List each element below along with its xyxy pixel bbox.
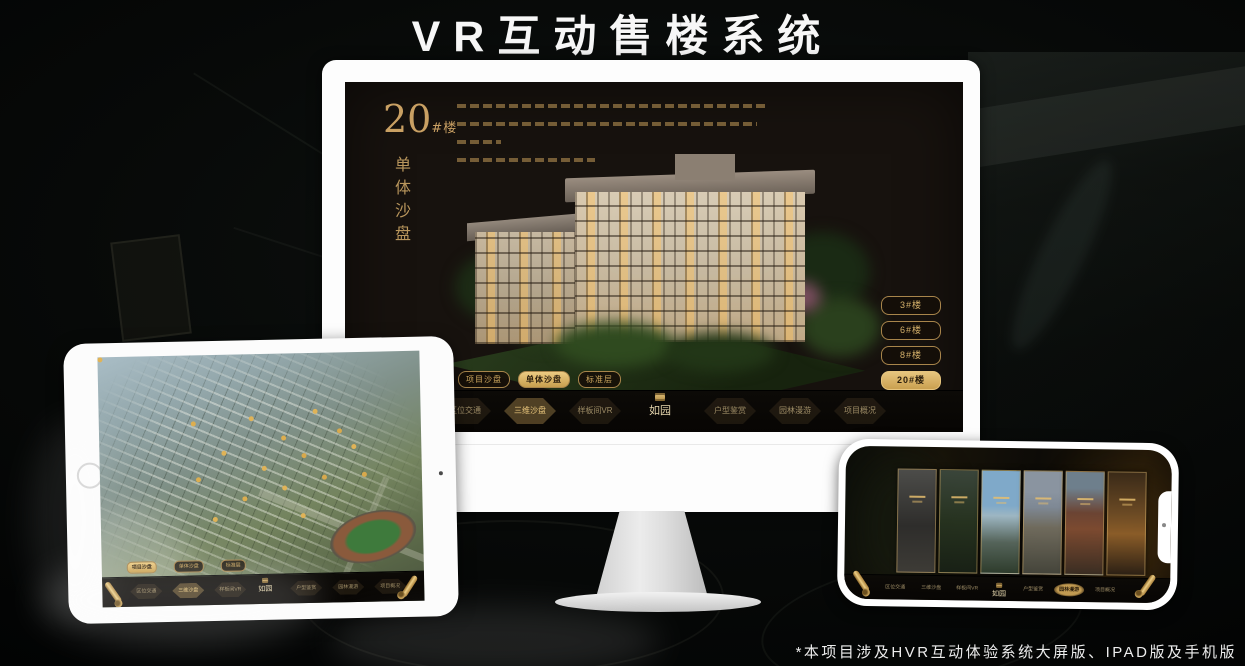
building-facade	[575, 192, 805, 342]
building-number-title: 20#楼	[383, 100, 457, 138]
tablet-camera-icon	[439, 471, 443, 475]
nav-item-overview[interactable]: 项目概况	[828, 396, 892, 426]
gallery-card-building[interactable]	[1022, 470, 1062, 575]
intro-text-line	[457, 104, 769, 108]
phone-screen[interactable]: 区位交通 三维沙盘 样板间VR 如园 户型鉴赏 园林漫游 项目概况	[844, 446, 1172, 604]
tab-standard-floor[interactable]: 标准层	[578, 371, 621, 388]
phone-notch	[1157, 491, 1171, 563]
brand-logo: 如园	[986, 583, 1012, 599]
tab-project-sandbox[interactable]: 项目沙盘	[458, 371, 510, 388]
gallery-card-interior[interactable]	[1106, 471, 1146, 576]
building-windows	[475, 232, 580, 344]
monitor-stand-neck	[592, 511, 712, 599]
building-markers	[97, 357, 102, 362]
nav-item-showroom-vr[interactable]: 样板间VR	[563, 396, 627, 426]
building-wing	[475, 232, 580, 344]
ruyuan-seal-icon	[655, 393, 665, 401]
footnote: *本项目涉及HVR互动体验系统大屏版、IPAD版及手机版	[796, 641, 1237, 662]
nav-item-3d-sandbox[interactable]: 三维沙盘	[498, 396, 562, 426]
building-windows	[575, 192, 805, 342]
nav-item-garden-tour[interactable]: 园林漫游	[763, 396, 827, 426]
phone-device: 区位交通 三维沙盘 样板间VR 如园 户型鉴赏 园林漫游 项目概况	[837, 439, 1179, 611]
phone-nav-item-garden-tour[interactable]: 园林漫游	[1052, 582, 1086, 598]
bg-framed-plaque	[110, 234, 192, 342]
phone-nav-item-showroom-vr[interactable]: 样板间VR	[950, 580, 984, 596]
brand-logo: 如园	[635, 393, 685, 418]
intro-text-line	[457, 122, 757, 126]
gallery-card-autumn-court[interactable]	[1064, 471, 1104, 576]
intro-text-line	[457, 158, 595, 162]
gallery-card-lobby[interactable]	[938, 469, 978, 574]
phone-nav-item-overview[interactable]: 项目概况	[1088, 582, 1122, 598]
nav-item-floorplans[interactable]: 户型鉴赏	[698, 396, 762, 426]
building-penthouse	[675, 154, 735, 180]
fog-overlay	[30, 420, 120, 620]
gallery-card-gate[interactable]	[896, 468, 936, 573]
page-title: VR互动售楼系统	[0, 2, 1245, 64]
floor-button-20[interactable]: 20#楼	[881, 371, 941, 390]
intro-text-line	[457, 140, 501, 144]
tablet-nav-item-garden-tour[interactable]: 园林漫游	[328, 578, 368, 597]
phone-camera-icon	[1162, 523, 1166, 527]
monitor-stand-base	[555, 592, 761, 612]
floor-button-6[interactable]: 6#楼	[881, 321, 941, 340]
garden-foliage	[555, 322, 675, 367]
phone-nav-item-location[interactable]: 区位交通	[878, 579, 912, 595]
phone-nav-item-floorplans[interactable]: 户型鉴赏	[1016, 581, 1050, 597]
tab-single-sandbox[interactable]: 单体沙盘	[518, 371, 570, 388]
tablet-nav-item-overview[interactable]: 项目概况	[370, 577, 410, 596]
gallery-card-construction[interactable]	[980, 470, 1020, 575]
floor-button-8[interactable]: 8#楼	[881, 346, 941, 365]
floor-button-3[interactable]: 3#楼	[881, 296, 941, 315]
garden-foliage	[665, 332, 775, 372]
poster-canvas: VR互动售楼系统 20#楼 单体沙盘 3#楼 6#楼 8#楼 20#楼	[0, 0, 1245, 666]
building-subtitle: 单体沙盘	[389, 156, 413, 248]
ruyuan-seal-icon	[996, 583, 1002, 588]
phone-nav-item-3d-sandbox[interactable]: 三维沙盘	[914, 580, 948, 596]
